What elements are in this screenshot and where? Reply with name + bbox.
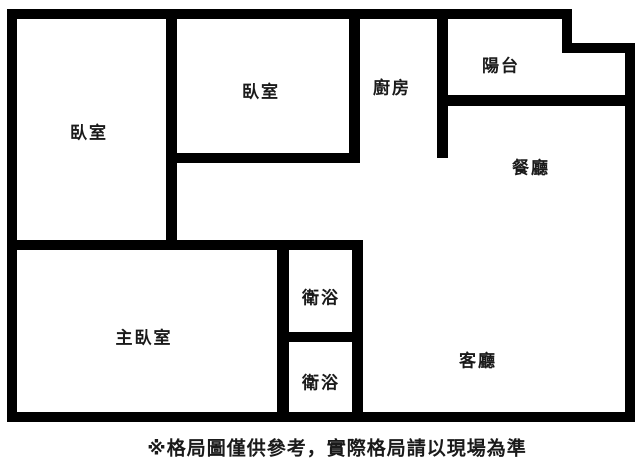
floor-plan: 臥室臥室廚房陽台餐廳主臥室衛浴衛浴客廳 ※格局圖僅供參考，實際格局請以現場為準 <box>0 0 640 467</box>
room-label-bathroom-top: 衛浴 <box>302 284 340 309</box>
room-label-balcony: 陽台 <box>482 52 520 77</box>
room-label-bedroom-top: 臥室 <box>242 78 280 103</box>
room-label-bedroom-left: 臥室 <box>70 119 108 144</box>
disclaimer-caption: ※格局圖僅供參考，實際格局請以現場為準 <box>147 434 526 461</box>
room-label-master-bedroom: 主臥室 <box>116 324 173 349</box>
room-label-kitchen: 廚房 <box>373 74 411 99</box>
room-label-bathroom-bottom: 衛浴 <box>302 369 340 394</box>
room-label-living-room: 客廳 <box>459 347 497 372</box>
room-labels-layer: 臥室臥室廚房陽台餐廳主臥室衛浴衛浴客廳 <box>0 0 640 467</box>
room-label-dining-room: 餐廳 <box>512 154 550 179</box>
